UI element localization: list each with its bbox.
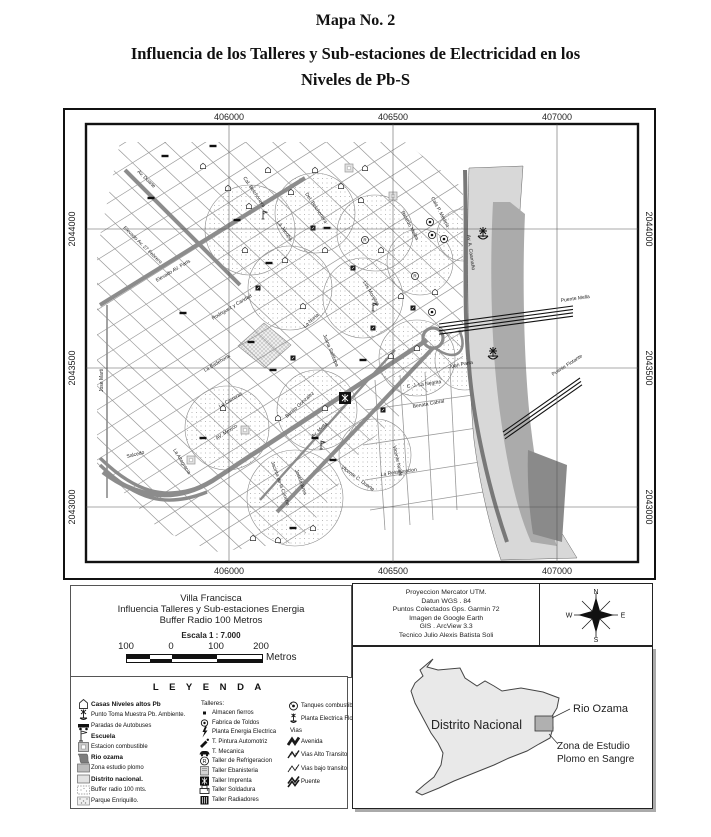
legend-item: Rio ozama xyxy=(76,752,194,763)
inset-river-label: Rio Ozama xyxy=(573,703,629,715)
bus-stop-icon xyxy=(162,155,169,157)
axis-label-right: 2044000 xyxy=(644,211,654,246)
street-label: Puente Mella xyxy=(560,294,590,304)
study-zone-marker xyxy=(535,716,553,731)
zigzag-med-icon xyxy=(286,749,301,761)
scale-segment xyxy=(127,659,150,663)
legend-column-vias: Tanques combustibles.Planta Electrica Fl… xyxy=(286,699,346,789)
axis-label-bottom: 406500 xyxy=(378,566,408,576)
anchor-star-icon xyxy=(286,713,301,725)
scale-segment xyxy=(172,659,217,663)
scale-bar-graphic xyxy=(126,654,263,663)
legend-item-label: T. Mecanica xyxy=(212,749,244,755)
axis-label-right: 2043500 xyxy=(644,350,654,385)
legend-item-label: Punto Toma Muestra Pb. Ambiente. xyxy=(91,712,185,718)
inset-map: Distrito Nacional Rio Ozama Zona de Estu… xyxy=(352,646,653,809)
info-subject: Influencia Talleres y Sub-estaciones Ene… xyxy=(71,604,351,615)
legend-item: Parque Enriquillo. xyxy=(76,795,194,806)
legend-item-label: Planta Energia Electrica xyxy=(212,729,276,735)
legend-item-label: Zona estudio plomo xyxy=(91,765,144,771)
street-label: Av. Duarte xyxy=(136,169,157,190)
street-label: Elevado Av. 27 Febrero xyxy=(122,225,164,265)
legend-item-label: Escuela xyxy=(91,733,115,740)
street-label: Juana Saltitopa xyxy=(321,334,340,368)
compass-w: W xyxy=(566,612,573,619)
street-label: Benata Cabral xyxy=(412,399,445,410)
axis-label-left: 2043000 xyxy=(67,489,77,524)
fuel-station-icon xyxy=(345,164,353,172)
bus-stop-icon xyxy=(210,145,217,147)
inset-region-label: Distrito Nacional xyxy=(431,718,522,732)
swatch-parque-icon xyxy=(76,795,91,807)
imprenta-icon xyxy=(339,392,351,404)
axis-label-bottom: 406000 xyxy=(214,566,244,576)
legend-item-label: Vias Alto Transito xyxy=(301,752,347,758)
map-title-line1: Influencia de los Talleres y Sub-estacio… xyxy=(0,44,711,64)
compass-e: E xyxy=(621,612,626,619)
rio-ozama xyxy=(468,166,577,560)
scale-bar: 1000100200 Metros xyxy=(126,641,346,671)
scale-tick: 100 xyxy=(118,641,134,652)
legend: L E Y E N D A Casas Niveles altos PbPunt… xyxy=(70,676,348,809)
compass-n: N xyxy=(594,589,599,596)
projection-line: Datun WGS . 84 xyxy=(355,598,537,607)
axis-label-left: 2043500 xyxy=(67,350,77,385)
legend-item-label: Avenida xyxy=(301,739,323,745)
legend-item-label: Taller Ebanisteria xyxy=(212,768,258,774)
legend-item-label: Taller Soldadura xyxy=(212,787,255,793)
legend-vias-header: Vias xyxy=(290,727,346,734)
scale-text: Escala 1 : 7.000 xyxy=(71,631,351,640)
legend-item: Punto Toma Muestra Pb. Ambiente. xyxy=(76,710,194,721)
legend-item: Escuela xyxy=(76,731,194,742)
fuel-station-icon xyxy=(187,456,195,464)
legend-item: Taller Radiadores xyxy=(197,795,285,805)
scale-tick: 0 xyxy=(168,641,173,652)
legend-item-label: Puente xyxy=(301,779,320,785)
axis-label-top: 406000 xyxy=(214,112,244,122)
compass-rose: N S W E xyxy=(565,587,627,643)
house-icon xyxy=(362,165,367,170)
legend-item: Distrito nacional. xyxy=(76,774,194,785)
tank-big-icon xyxy=(286,700,301,712)
legend-talleres-header: Talleres: xyxy=(201,700,285,707)
legend-item-label: Distrito nacional. xyxy=(91,776,143,783)
house-icon xyxy=(312,167,317,172)
legend-item-label: Rio ozama xyxy=(91,754,123,761)
legend-item: Estacion combustible xyxy=(76,742,194,753)
legend-item: Vias bajo transito xyxy=(286,762,346,776)
legend-item: Vias Alto Transito xyxy=(286,749,346,763)
info-buffer: Buffer Radio 100 Metros xyxy=(71,615,351,626)
refrigeration-icon: R xyxy=(362,237,369,244)
bus-stop-icon xyxy=(248,341,255,343)
scale-segment xyxy=(217,659,262,663)
fuel-station-icon xyxy=(241,426,249,434)
scale-unit: Metros xyxy=(266,652,297,663)
taller-icon xyxy=(411,306,416,311)
legend-item-label: Paradas de Autobuses xyxy=(91,723,151,729)
bus-stop-icon xyxy=(330,459,337,461)
city-map: RR Av. DuarteElevado Av. 27 FebreroEleva… xyxy=(65,110,654,578)
legend-item: Casas Niveles altos Pb xyxy=(76,699,194,710)
zigzag-thick-icon xyxy=(286,736,301,748)
bus-stop-icon xyxy=(200,437,207,439)
grid-square-icon xyxy=(197,794,212,806)
info-area: Villa Francisca xyxy=(71,593,351,604)
projection-text: Proyeccion Mercator UTM.Datun WGS . 84Pu… xyxy=(353,584,539,645)
legend-item-label: Casas Niveles altos Pb xyxy=(91,701,161,708)
legend-item-label: Taller de Refrigeracion xyxy=(212,758,272,764)
parque-enriquillo xyxy=(238,323,291,368)
legend-item: Puente xyxy=(286,776,346,790)
legend-column-general: Casas Niveles altos PbPunto Toma Muestra… xyxy=(76,699,194,806)
scale-segment xyxy=(150,659,173,663)
bus-stop-icon xyxy=(234,219,241,221)
street-label: Salcedo xyxy=(126,450,145,460)
projection-line: Puntos Colectados Gps. Garmin 72 xyxy=(355,606,537,615)
legend-item-label: Fabrica de Toldos xyxy=(212,720,259,726)
legend-column-talleres: Talleres:Almacen fierrosFabrica de Toldo… xyxy=(197,699,285,805)
compass-cell: N S W E xyxy=(539,584,652,645)
zigzag-thin-icon xyxy=(286,763,301,775)
info-box: Villa Francisca Influencia Talleres y Su… xyxy=(70,585,352,678)
fuel-tank-icon xyxy=(428,231,435,238)
legend-item: Buffer radio 100 mts. xyxy=(76,785,194,796)
fuel-tank-icon xyxy=(428,308,435,315)
projection-line: Imagen de Google Earth xyxy=(355,615,537,624)
taller-icon xyxy=(311,226,316,231)
bus-stop-icon xyxy=(270,369,277,371)
legend-item: Avenida xyxy=(286,735,346,749)
projection-line: GIS . ArcView 3.3 xyxy=(355,623,537,632)
street-grid xyxy=(65,110,654,578)
street-label: Jose Marti xyxy=(99,369,105,392)
fuel-tank-icon xyxy=(440,235,447,242)
bus-stop-icon xyxy=(360,359,367,361)
house-icon xyxy=(265,167,270,172)
projection-line: Tecnico Julio Alexis Batista Soli xyxy=(355,632,537,641)
axis-labels: 4060004065004070004060004065004070002044… xyxy=(67,112,654,576)
axis-label-top: 407000 xyxy=(542,112,572,122)
legend-item-label: Vias bajo transito xyxy=(301,766,347,772)
legend-item: Tanques combustibles. xyxy=(286,699,346,713)
taller-icon xyxy=(256,286,261,291)
legend-item-label: Taller Imprenta xyxy=(212,778,252,784)
house-icon xyxy=(200,163,205,168)
axis-label-right: 2043000 xyxy=(644,489,654,524)
street-label: Rodriguez y Caridad xyxy=(211,293,253,322)
axis-label-bottom: 407000 xyxy=(542,566,572,576)
fuel-tank-icon xyxy=(426,218,433,225)
legend-item-label: Estacion combustible xyxy=(91,744,148,750)
taller-icon xyxy=(381,408,386,413)
legend-item: Paradas de Autobuses xyxy=(76,720,194,731)
map-frame: RR Av. DuarteElevado Av. 27 FebreroEleva… xyxy=(63,108,656,580)
legend-item-label: Taller Radiadores xyxy=(212,797,259,803)
legend-item-label: Parque Enriquillo. xyxy=(91,798,138,804)
legend-title: L E Y E N D A xyxy=(71,682,347,693)
zigzag-double-icon xyxy=(286,776,301,788)
map-title-line2: Niveles de Pb-S xyxy=(0,70,711,90)
bus-stop-icon xyxy=(266,262,273,264)
scale-tick: 200 xyxy=(253,641,269,652)
street-label: La Badehona xyxy=(203,353,232,374)
legend-item: Zona estudio plomo xyxy=(76,763,194,774)
taller-icon xyxy=(351,266,356,271)
projection-line: Proyeccion Mercator UTM. xyxy=(355,589,537,598)
inset-zone-label-1: Zona de Estudio xyxy=(557,741,630,752)
compass-s: S xyxy=(594,637,599,643)
inset-svg: Distrito Nacional Rio Ozama Zona de Estu… xyxy=(353,647,652,808)
projection-box: Proyeccion Mercator UTM.Datun WGS . 84Pu… xyxy=(352,583,653,646)
map-number: Mapa No. 2 xyxy=(0,12,711,30)
inset-zone-label-2: Plomo en Sangre xyxy=(557,754,635,765)
axis-label-top: 406500 xyxy=(378,112,408,122)
bus-stop-icon xyxy=(148,197,155,199)
legend-item-label: Buffer radio 100 mts. xyxy=(91,787,147,793)
taller-icon xyxy=(291,356,296,361)
refrigeration-icon: R xyxy=(412,273,419,280)
taller-icon xyxy=(371,326,376,331)
legend-item-label: T. Pintura Automotriz xyxy=(212,739,267,745)
house-icon xyxy=(225,185,230,190)
bus-stop-icon xyxy=(290,527,297,529)
street-label: Puente Flotante xyxy=(551,353,584,377)
bus-stop-icon xyxy=(180,312,187,314)
scale-tick: 100 xyxy=(208,641,224,652)
legend-item: Planta Electrica Flotante xyxy=(286,713,346,727)
legend-item-label: Almacen fierros xyxy=(212,710,254,716)
map-document: Mapa No. 2 Influencia de los Talleres y … xyxy=(0,0,711,837)
axis-label-left: 2044000 xyxy=(67,211,77,246)
